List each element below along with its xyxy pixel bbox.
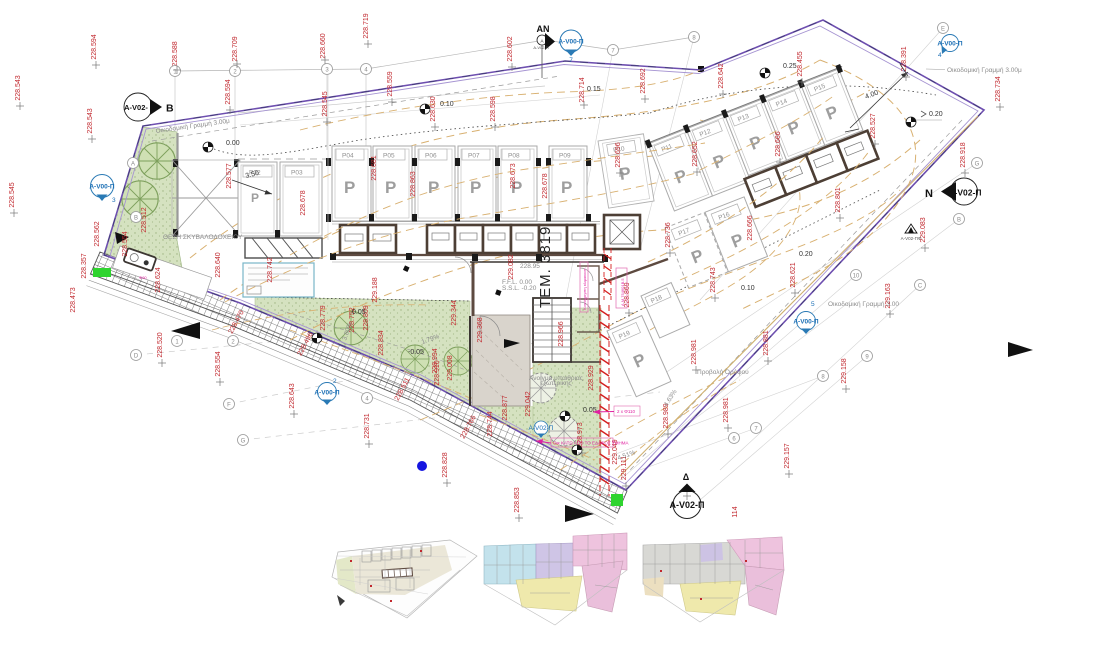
svg-text:5: 5 <box>811 301 815 308</box>
svg-text:S.S.L. -0.20: S.S.L. -0.20 <box>502 285 537 292</box>
svg-text:228.692: 228.692 <box>640 68 647 93</box>
svg-text:228.455: 228.455 <box>797 51 804 76</box>
svg-text:AN: AN <box>537 24 550 34</box>
svg-text:0.10: 0.10 <box>741 285 755 292</box>
svg-text:A: A <box>540 39 543 44</box>
svg-text:228.736: 228.736 <box>665 222 672 247</box>
svg-text:10: 10 <box>853 274 860 280</box>
svg-text:P03: P03 <box>291 170 303 177</box>
svg-text:228.598: 228.598 <box>490 96 497 121</box>
svg-text:228.642: 228.642 <box>718 63 725 88</box>
svg-text:228.709: 228.709 <box>232 36 239 61</box>
svg-text:D: D <box>134 354 139 360</box>
svg-text:A-V00-Π: A-V00-Π <box>937 41 963 48</box>
svg-text:Α-V02-Π: Α-V02-Π <box>533 45 548 50</box>
svg-text:228.734: 228.734 <box>995 76 1002 101</box>
svg-text:228.743: 228.743 <box>710 267 717 292</box>
svg-text:A-V02-Π: A-V02-Π <box>529 425 554 432</box>
svg-text:228.834: 228.834 <box>378 330 385 355</box>
svg-text:228.731: 228.731 <box>364 413 371 438</box>
svg-text:114: 114 <box>732 506 739 517</box>
svg-text:228.512: 228.512 <box>141 207 148 232</box>
svg-text:228.660: 228.660 <box>320 33 327 58</box>
svg-text:P: P <box>385 178 396 197</box>
svg-text:G: G <box>975 162 980 168</box>
svg-text:A.M.754601B.5: A.M.754601B.5 <box>620 278 625 306</box>
svg-text:7: 7 <box>569 57 573 64</box>
svg-text:Οικοδομική Γραμμή 3.00μ: Οικοδομική Γραμμή 3.00μ <box>947 67 1022 74</box>
svg-text:228.869: 228.869 <box>624 282 631 307</box>
svg-text:Δ: Δ <box>683 472 690 482</box>
svg-text:228.966: 228.966 <box>558 321 565 346</box>
svg-text:P06: P06 <box>425 153 437 160</box>
svg-text:A-V00-Π: A-V00-Π <box>314 390 340 397</box>
svg-text:228.559: 228.559 <box>387 71 394 96</box>
svg-text:228.554: 228.554 <box>122 231 129 256</box>
svg-text:A-V02-: A-V02- <box>124 103 148 112</box>
svg-text:228.545: 228.545 <box>9 182 16 207</box>
svg-text:228.719: 228.719 <box>363 13 370 38</box>
svg-text:229.157: 229.157 <box>784 443 791 468</box>
svg-text:228.881: 228.881 <box>763 330 770 355</box>
svg-text:3: 3 <box>112 197 116 204</box>
svg-text:2: 2 <box>333 378 337 385</box>
svg-text:ΘΕΣΗ ΣΚΥΒΑΛΟΔΟΧΕΙΟΥ: ΘΕΣΗ ΣΚΥΒΑΛΟΔΟΧΕΙΟΥ <box>163 234 243 241</box>
svg-text:228.545: 228.545 <box>322 91 329 116</box>
svg-text:B: B <box>166 103 174 115</box>
svg-text:228.543: 228.543 <box>15 75 22 100</box>
svg-text:228.95: 228.95 <box>520 263 540 270</box>
svg-text:228.863: 228.863 <box>410 171 417 196</box>
svg-text:0.25: 0.25 <box>783 63 797 70</box>
svg-text:0.20: 0.20 <box>929 111 943 118</box>
svg-text:228.562: 228.562 <box>94 221 101 246</box>
svg-text:228.714: 228.714 <box>579 77 586 102</box>
svg-text:P08: P08 <box>508 153 520 160</box>
svg-text:228.554: 228.554 <box>215 351 222 376</box>
svg-text:0.10: 0.10 <box>440 101 454 108</box>
svg-text:228.828: 228.828 <box>442 452 449 477</box>
svg-text:P: P <box>561 178 572 197</box>
svg-text:228.666: 228.666 <box>747 215 754 240</box>
svg-text:0.00: 0.00 <box>226 140 240 147</box>
svg-text:228.678: 228.678 <box>300 190 307 215</box>
svg-text:228.673: 228.673 <box>510 163 517 188</box>
svg-text:228.621: 228.621 <box>790 262 797 287</box>
svg-text:P: P <box>428 178 439 197</box>
svg-text:228.910: 228.910 <box>434 360 441 385</box>
svg-text:P05: P05 <box>383 153 395 160</box>
svg-text:P04: P04 <box>342 153 354 160</box>
svg-text:C: C <box>918 284 923 290</box>
svg-text:229.082: 229.082 <box>508 254 515 279</box>
svg-text:229.368: 229.368 <box>477 317 484 342</box>
svg-text:228.520: 228.520 <box>157 332 164 357</box>
svg-text:A-V00-Π: A-V00-Π <box>793 319 819 326</box>
svg-text:229.042: 229.042 <box>525 391 532 416</box>
svg-text:228.877: 228.877 <box>502 395 509 420</box>
svg-text:Προβολή Ορόφου: Προβολή Ορόφου <box>697 368 749 376</box>
svg-text:228.624: 228.624 <box>155 267 162 292</box>
svg-text:εξωτερικης: εξωτερικης <box>540 380 571 387</box>
svg-text:228.681: 228.681 <box>371 155 378 180</box>
svg-text:229.008: 229.008 <box>447 355 454 380</box>
svg-text:G: G <box>241 439 246 445</box>
svg-text:228.527: 228.527 <box>870 113 877 138</box>
svg-text:228.666: 228.666 <box>775 131 782 156</box>
svg-text:A-V00-Π: A-V00-Π <box>89 184 115 191</box>
svg-text:228.981: 228.981 <box>723 397 730 422</box>
svg-text:228.602: 228.602 <box>507 36 514 61</box>
svg-text:228.640: 228.640 <box>215 252 222 277</box>
svg-text:F: F <box>227 403 231 409</box>
svg-text:228.391: 228.391 <box>901 46 908 71</box>
svg-text:P09: P09 <box>559 153 571 160</box>
svg-text:2 x Φ110: 2 x Φ110 <box>617 409 636 414</box>
svg-text:B: B <box>134 216 138 222</box>
svg-text:228.594: 228.594 <box>91 34 98 59</box>
svg-text:228.643: 228.643 <box>289 383 296 408</box>
svg-text:228.744: 228.744 <box>487 411 494 436</box>
svg-text:Α-V02-ΠΦ: Α-V02-ΠΦ <box>901 236 922 241</box>
svg-text:A-V02-Π: A-V02-Π <box>669 500 704 510</box>
svg-text:229.188: 229.188 <box>372 277 379 302</box>
svg-text:Φ60: Φ60 <box>139 275 147 280</box>
svg-text:228.652: 228.652 <box>692 141 699 166</box>
svg-text:Οικοδομική Γραμμή 3.00: Οικοδομική Γραμμή 3.00 <box>828 301 899 308</box>
svg-text:4: 4 <box>938 52 942 59</box>
svg-text:229.158: 229.158 <box>841 358 848 383</box>
svg-text:228.981: 228.981 <box>691 339 698 364</box>
svg-text:228.543: 228.543 <box>87 108 94 133</box>
svg-text:0.15: 0.15 <box>587 86 601 93</box>
svg-text:228.588: 228.588 <box>172 41 179 66</box>
svg-text:228.473: 228.473 <box>70 287 77 312</box>
svg-text:228.594: 228.594 <box>225 79 232 104</box>
svg-text:Κοινόχρηστη κλιμακοστ.: Κοινόχρηστη κλιμακοστ. <box>582 267 587 310</box>
svg-text:228.853: 228.853 <box>514 487 521 512</box>
svg-text:228.357: 228.357 <box>81 253 88 278</box>
svg-text:228.742: 228.742 <box>267 257 274 282</box>
svg-text:228.779: 228.779 <box>320 305 327 330</box>
svg-text:P: P <box>344 178 355 197</box>
svg-text:A: A <box>131 162 135 168</box>
svg-text:228.801: 228.801 <box>835 187 842 212</box>
svg-text:P: P <box>251 191 259 205</box>
svg-text:A-V00-Π: A-V00-Π <box>558 39 584 46</box>
svg-text:B: B <box>957 218 961 224</box>
svg-text:N: N <box>925 188 933 200</box>
svg-text:228.918: 228.918 <box>960 142 967 167</box>
svg-text:0.05: 0.05 <box>352 309 366 316</box>
svg-text:228.678: 228.678 <box>542 173 549 198</box>
svg-text:228.696: 228.696 <box>615 142 622 167</box>
svg-text:0.05: 0.05 <box>583 407 597 414</box>
svg-text:228.630: 228.630 <box>430 96 437 121</box>
svg-text:-V02-Π: -V02-Π <box>955 188 982 198</box>
svg-text:-0.05: -0.05 <box>408 349 424 356</box>
svg-text:228.577: 228.577 <box>226 163 233 188</box>
svg-text:P: P <box>470 178 481 197</box>
svg-text:228.929: 228.929 <box>588 365 595 390</box>
svg-text:P07: P07 <box>468 153 480 160</box>
svg-text:229.344: 229.344 <box>451 300 458 325</box>
svg-text:E: E <box>941 27 945 33</box>
svg-text:Οικ ΚΑΤΩ ΑΠΟ ΤΟ ΕΔΑΦΟΣ ΤΜΗΜΑ: Οικ ΚΑΤΩ ΑΠΟ ΤΟ ΕΔΑΦΟΣ ΤΜΗΜΑ <box>553 441 628 446</box>
svg-text:0.20: 0.20 <box>799 251 813 258</box>
